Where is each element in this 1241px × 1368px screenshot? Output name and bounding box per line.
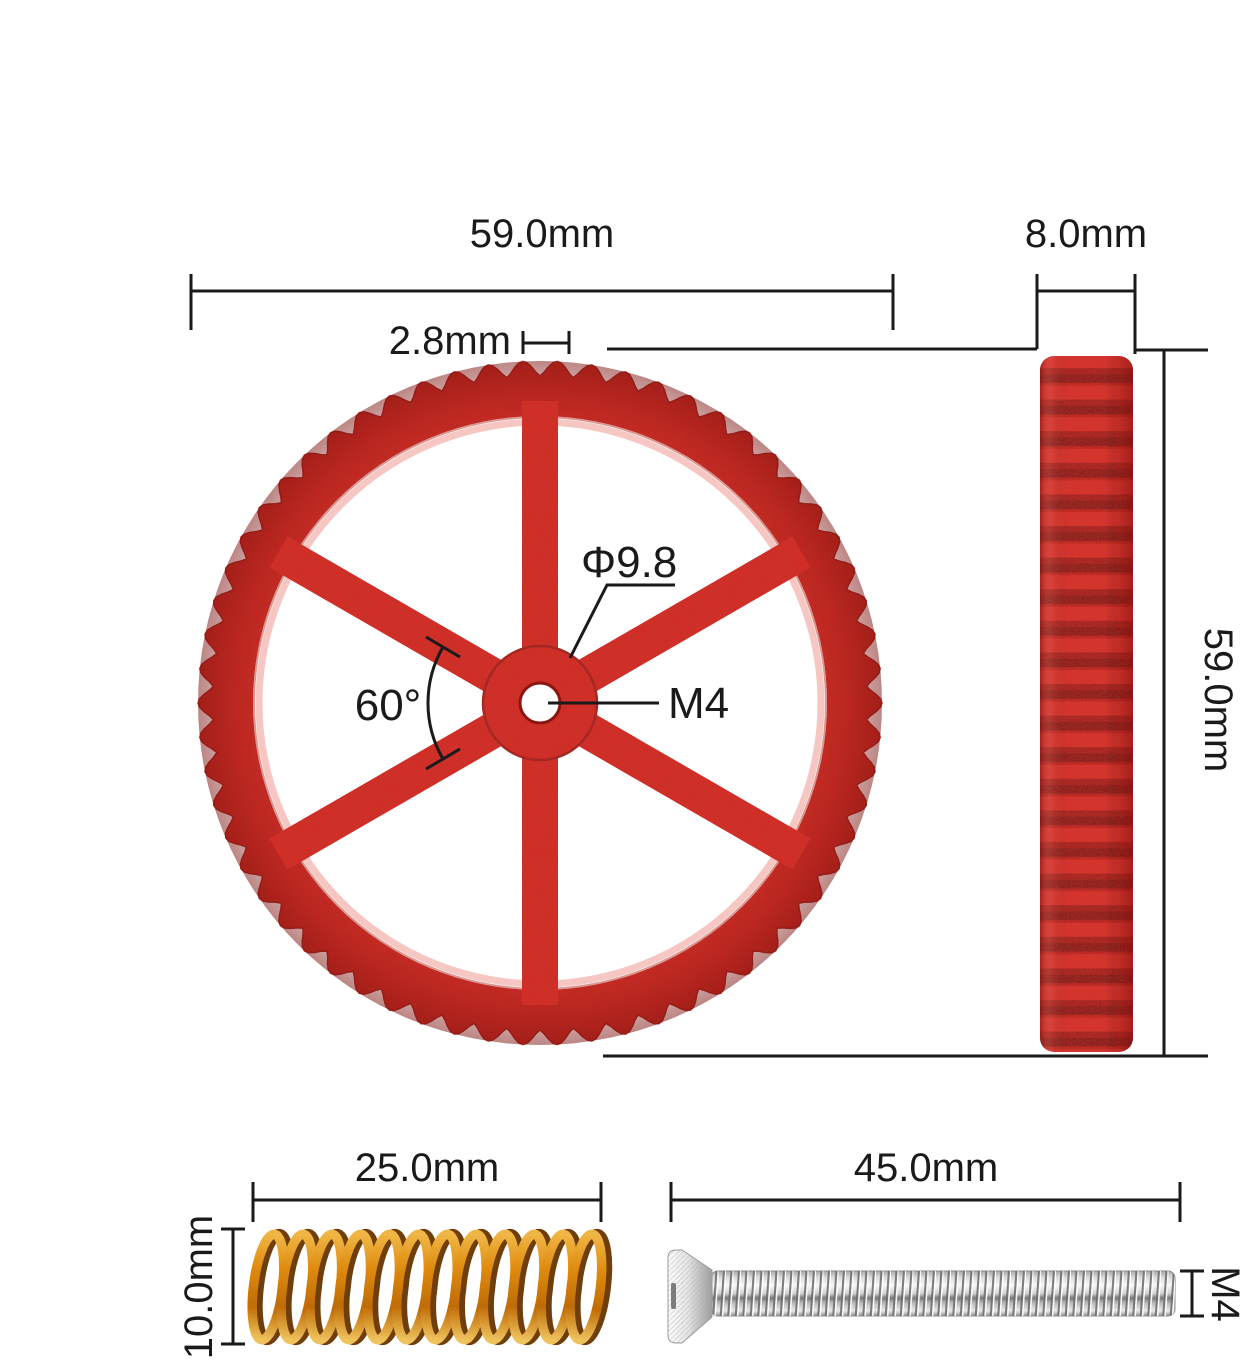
screw-threads [711, 1271, 1175, 1316]
hand-wheel-side-view [1040, 356, 1133, 1052]
dim-label-screw-length: 45.0mm [854, 1146, 999, 1190]
dim-label-spring-diameter: 10.0mm [177, 1215, 221, 1360]
screw-drive-recess [671, 1283, 676, 1309]
dim-label-wheel-diameter-side: 59.0mm [1196, 628, 1240, 773]
side-band-shading [1040, 356, 1133, 1052]
dim-label-spring-length: 25.0mm [355, 1146, 500, 1190]
hand-wheel-front-view [198, 361, 882, 1045]
m4-screw [668, 1250, 1175, 1343]
dim-label-screw-thread: M4 [1203, 1266, 1241, 1322]
dim-label-hub-diameter: Φ9.8 [581, 538, 677, 587]
dim-label-center-thread: M4 [668, 679, 729, 728]
dim-label-spoke-angle: 60° [355, 681, 422, 730]
dim-label-rim-thickness: 2.8mm [389, 319, 511, 363]
dim-label-wheel-diameter-top: 59.0mm [470, 212, 615, 256]
compression-spring [247, 1233, 612, 1342]
diagram-svg: 59.0mm 2.8mm 8.0mm 59.0mm Φ9.8 M4 60° [0, 0, 1241, 1368]
spring-coils [247, 1233, 612, 1342]
dim-label-wheel-thickness: 8.0mm [1025, 212, 1147, 256]
product-dimension-diagram: 59.0mm 2.8mm 8.0mm 59.0mm Φ9.8 M4 60° [0, 0, 1241, 1368]
